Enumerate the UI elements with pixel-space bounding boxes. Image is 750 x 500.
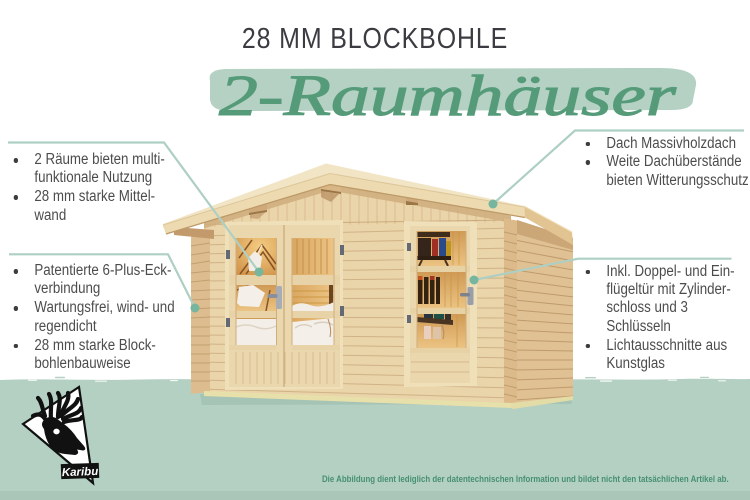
svg-text:Karibu: Karibu — [62, 466, 99, 479]
svg-text:2-Raumhäuser: 2-Raumhäuser — [219, 63, 677, 128]
